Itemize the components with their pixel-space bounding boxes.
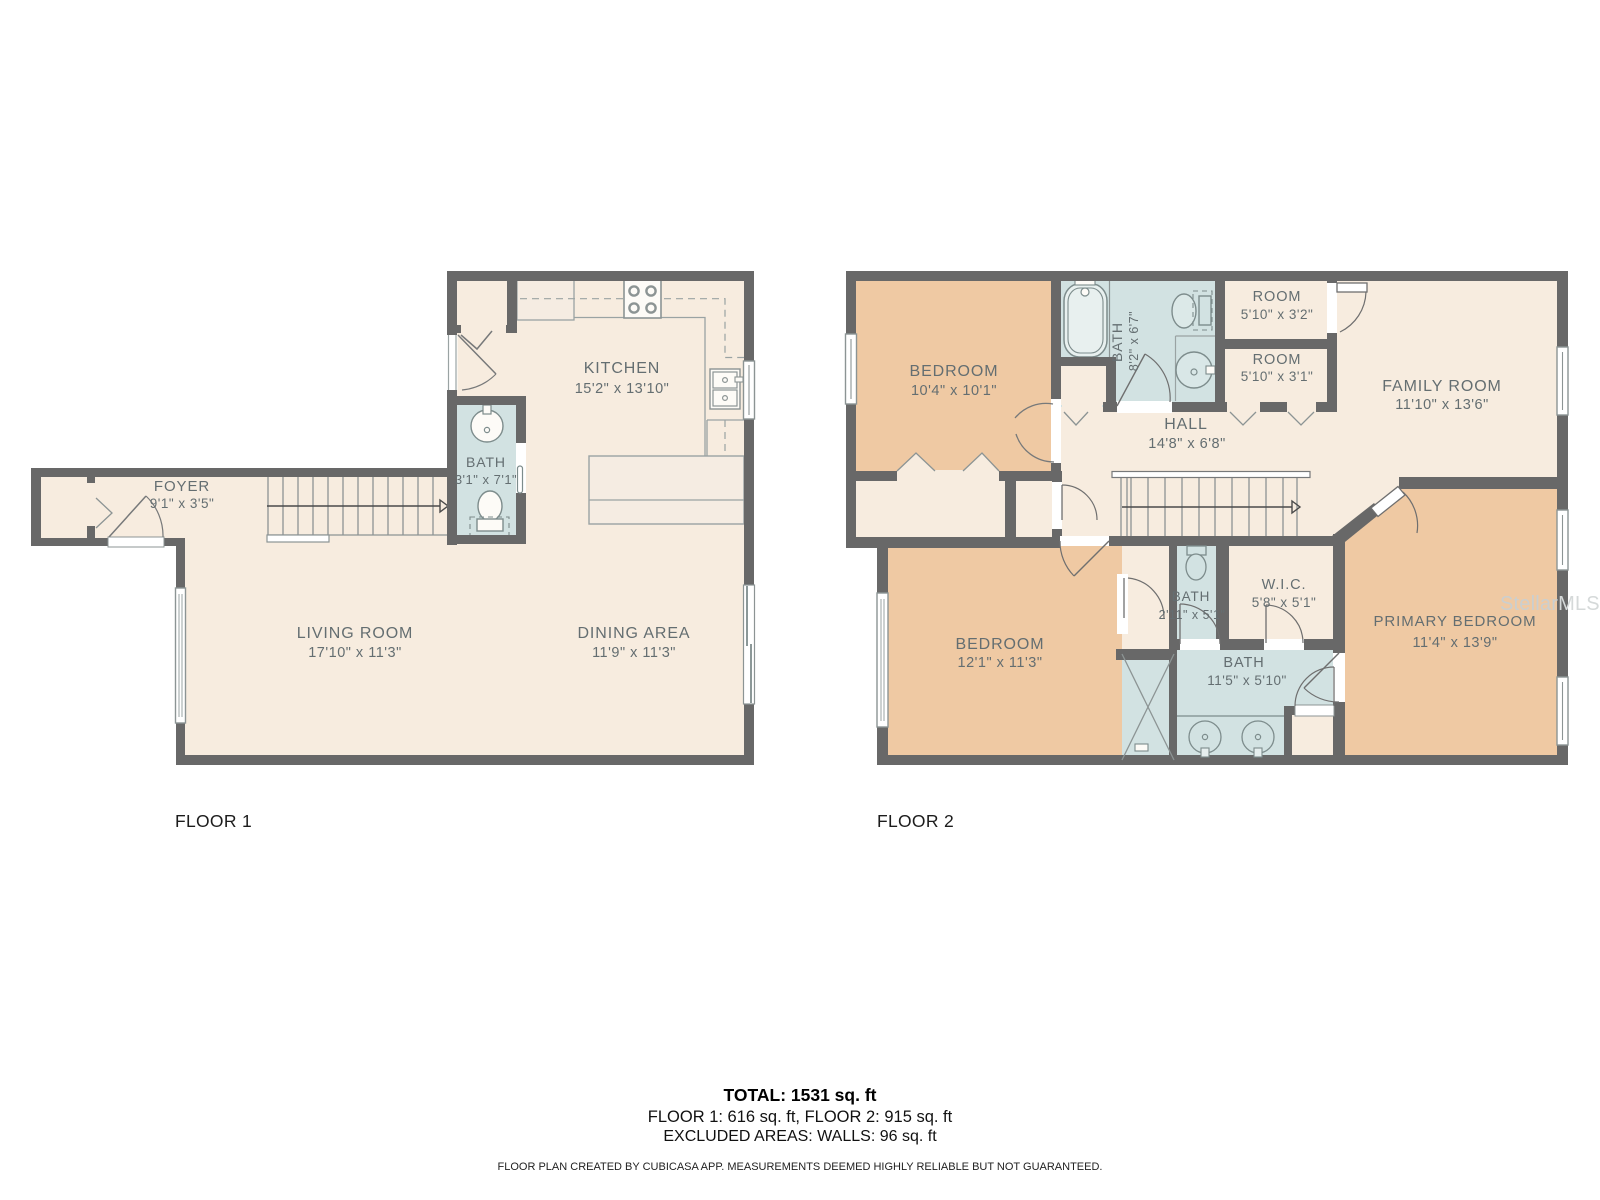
svg-text:9'1" x 3'5": 9'1" x 3'5" — [150, 496, 215, 511]
svg-text:3'1" x 7'1": 3'1" x 7'1" — [455, 472, 517, 487]
svg-text:8'2" x 6'7": 8'2" x 6'7" — [1127, 311, 1141, 371]
svg-text:11'10" x 13'6": 11'10" x 13'6" — [1395, 397, 1489, 413]
svg-text:ROOM: ROOM — [1253, 352, 1302, 368]
svg-text:HALL: HALL — [1164, 416, 1208, 433]
svg-text:BATH: BATH — [1109, 322, 1125, 362]
svg-text:BEDROOM: BEDROOM — [956, 636, 1045, 653]
svg-text:5'10" x 3'1": 5'10" x 3'1" — [1241, 369, 1314, 384]
svg-text:KITCHEN: KITCHEN — [584, 360, 661, 377]
svg-text:BATH: BATH — [1172, 589, 1211, 604]
svg-text:ROOM: ROOM — [1253, 289, 1302, 305]
svg-text:FAMILY ROOM: FAMILY ROOM — [1382, 378, 1502, 395]
svg-text:11'9" x 11'3": 11'9" x 11'3" — [592, 645, 676, 661]
svg-text:FLOOR 1: FLOOR 1 — [175, 811, 252, 831]
svg-text:BATH: BATH — [1223, 655, 1264, 671]
svg-text:5'10" x 3'2": 5'10" x 3'2" — [1241, 307, 1314, 322]
svg-text:StellarMLS: StellarMLS — [1500, 593, 1600, 615]
svg-text:DINING AREA: DINING AREA — [577, 625, 690, 642]
svg-text:LIVING ROOM: LIVING ROOM — [297, 625, 414, 642]
svg-text:FLOOR 2: FLOOR 2 — [877, 811, 954, 831]
svg-text:BATH: BATH — [466, 454, 506, 470]
svg-text:TOTAL: 1531 sq. ft: TOTAL: 1531 sq. ft — [724, 1085, 877, 1105]
svg-text:FOYER: FOYER — [154, 478, 210, 495]
svg-text:17'10" x 11'3": 17'10" x 11'3" — [308, 645, 402, 661]
svg-text:12'1" x 11'3": 12'1" x 11'3" — [958, 655, 1043, 671]
svg-text:W.I.C.: W.I.C. — [1262, 577, 1307, 593]
svg-text:11'5" x 5'10": 11'5" x 5'10" — [1207, 673, 1287, 688]
svg-text:5'8" x 5'1": 5'8" x 5'1" — [1252, 595, 1317, 610]
svg-text:FLOOR 1: 616 sq. ft, FLOOR 2:: FLOOR 1: 616 sq. ft, FLOOR 2: 915 sq. ft — [648, 1108, 953, 1126]
svg-text:10'4" x 10'1": 10'4" x 10'1" — [911, 383, 997, 399]
svg-text:11'4" x 13'9": 11'4" x 13'9" — [1413, 635, 1498, 651]
svg-text:15'2" x 13'10": 15'2" x 13'10" — [575, 381, 670, 397]
svg-text:BEDROOM: BEDROOM — [910, 363, 999, 380]
svg-text:2'11" x 5'1": 2'11" x 5'1" — [1159, 608, 1226, 622]
svg-text:PRIMARY BEDROOM: PRIMARY BEDROOM — [1374, 613, 1537, 630]
svg-text:FLOOR PLAN CREATED BY CUBICASA: FLOOR PLAN CREATED BY CUBICASA APP. MEAS… — [498, 1161, 1103, 1173]
svg-text:EXCLUDED AREAS: WALLS: 96 sq.: EXCLUDED AREAS: WALLS: 96 sq. ft — [663, 1128, 937, 1145]
svg-text:14'8" x 6'8": 14'8" x 6'8" — [1148, 436, 1225, 452]
